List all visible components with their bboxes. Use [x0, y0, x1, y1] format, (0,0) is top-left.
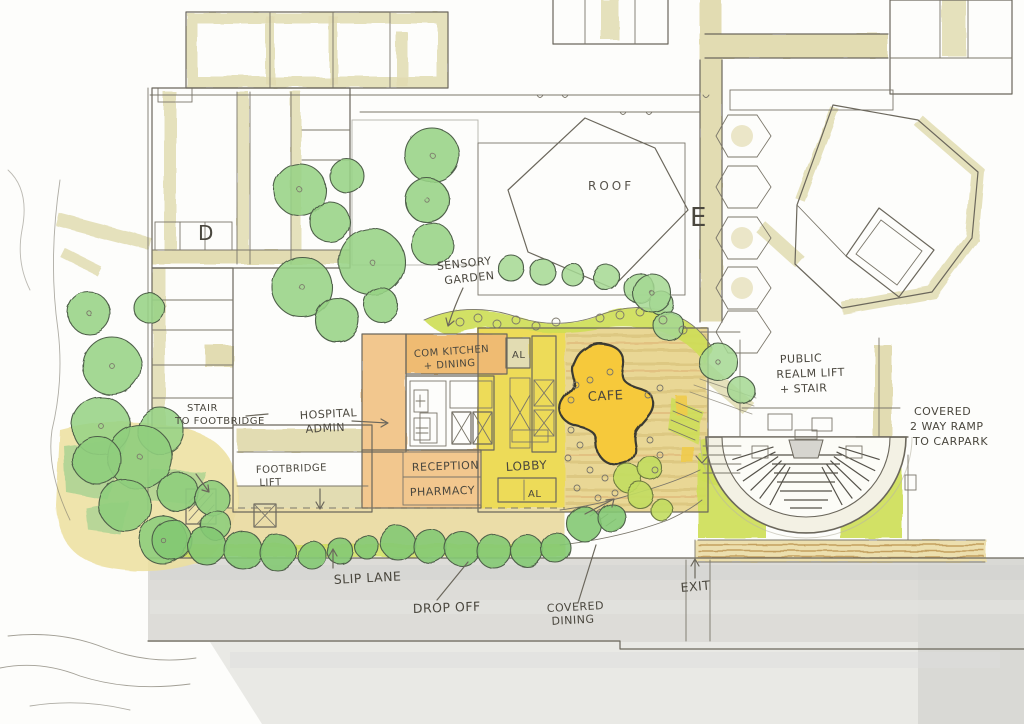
tree: [413, 529, 447, 563]
label-reception: RECEPTION: [412, 459, 480, 474]
tree: [315, 298, 359, 342]
label-block-d: D: [198, 221, 214, 245]
label-stair-2: TO FOOTBRIDGE: [174, 416, 265, 427]
tree: [728, 377, 754, 403]
tree: [327, 538, 353, 564]
site-plan-sketch: ROOF D E SENSORY GARDEN COM KITCHEN + DI…: [0, 0, 1024, 724]
label-exit: EXIT: [680, 577, 711, 595]
tree: [188, 527, 226, 565]
label-block-e: E: [690, 203, 707, 233]
label-covered-dining-2: DINING: [551, 613, 595, 628]
tree: [83, 337, 141, 395]
tree: [405, 178, 449, 222]
tree: [99, 479, 151, 531]
tree: [298, 541, 326, 569]
tree: [310, 202, 350, 242]
tree: [498, 255, 524, 281]
label-hospital-admin-2: ADMIN: [305, 421, 345, 436]
tree: [330, 159, 364, 193]
label-cafe: CAFE: [587, 388, 623, 405]
ramp-lane: [695, 540, 987, 562]
tree: [633, 274, 671, 312]
tree: [339, 229, 405, 295]
tree: [562, 264, 584, 286]
tree: [445, 532, 479, 566]
tree: [699, 343, 737, 381]
tree: [654, 311, 684, 341]
tree: [381, 526, 415, 560]
tree: [598, 504, 626, 532]
label-public-realm-3: + STAIR: [780, 381, 828, 396]
shrub: [651, 499, 673, 521]
label-lobby: LOBBY: [505, 458, 547, 474]
label-footbridge-lift-2: LIFT: [259, 477, 282, 489]
tree: [68, 292, 110, 334]
label-footbridge-lift-1: FOOTBRIDGE: [256, 463, 327, 476]
tree: [477, 534, 511, 568]
label-public-realm-2: REALM LIFT: [776, 366, 845, 381]
tree: [134, 293, 164, 323]
tree: [158, 472, 198, 512]
label-al-upper: AL: [512, 350, 525, 361]
label-covered-ramp-3: TO CARPARK: [912, 435, 988, 448]
site-plan-canvas: ROOF D E SENSORY GARDEN COM KITCHEN + DI…: [0, 0, 1024, 724]
label-drop-off: DROP OFF: [413, 599, 481, 616]
label-roof: ROOF: [588, 179, 634, 193]
label-pharmacy: PHARMACY: [410, 484, 476, 499]
tree: [511, 535, 543, 567]
label-covered-ramp-2: 2 WAY RAMP: [910, 420, 984, 433]
tree: [260, 535, 296, 571]
label-al-lower: AL: [528, 489, 541, 500]
label-sensory-garden-2: GARDEN: [444, 269, 495, 287]
tree: [405, 128, 459, 182]
label-public-realm-1: PUBLIC: [780, 352, 823, 366]
tree: [567, 507, 601, 541]
tree: [195, 481, 229, 515]
shrub: [627, 482, 653, 508]
tree: [73, 436, 121, 484]
label-stair-1: STAIR: [187, 403, 218, 414]
tree: [364, 288, 398, 322]
label-covered-ramp-1: COVERED: [914, 405, 971, 418]
tree: [152, 520, 192, 560]
tree: [355, 535, 379, 559]
shrub: [638, 456, 662, 480]
tree: [541, 533, 571, 563]
tree: [593, 264, 619, 290]
label-hospital-admin-1: HOSPITAL: [300, 406, 358, 422]
tree: [530, 259, 556, 285]
tree: [224, 531, 262, 569]
